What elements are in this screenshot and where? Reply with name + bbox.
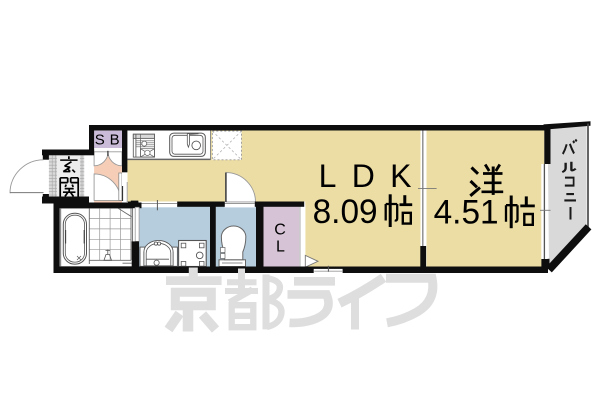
svg-text:C: C [274, 221, 286, 238]
svg-text:S B: S B [95, 132, 120, 149]
svg-text:LDK: LDK [319, 158, 427, 194]
svg-text:L: L [276, 238, 285, 255]
svg-text:4.51: 4.51 [434, 194, 499, 232]
svg-text:8.09: 8.09 [313, 193, 378, 231]
